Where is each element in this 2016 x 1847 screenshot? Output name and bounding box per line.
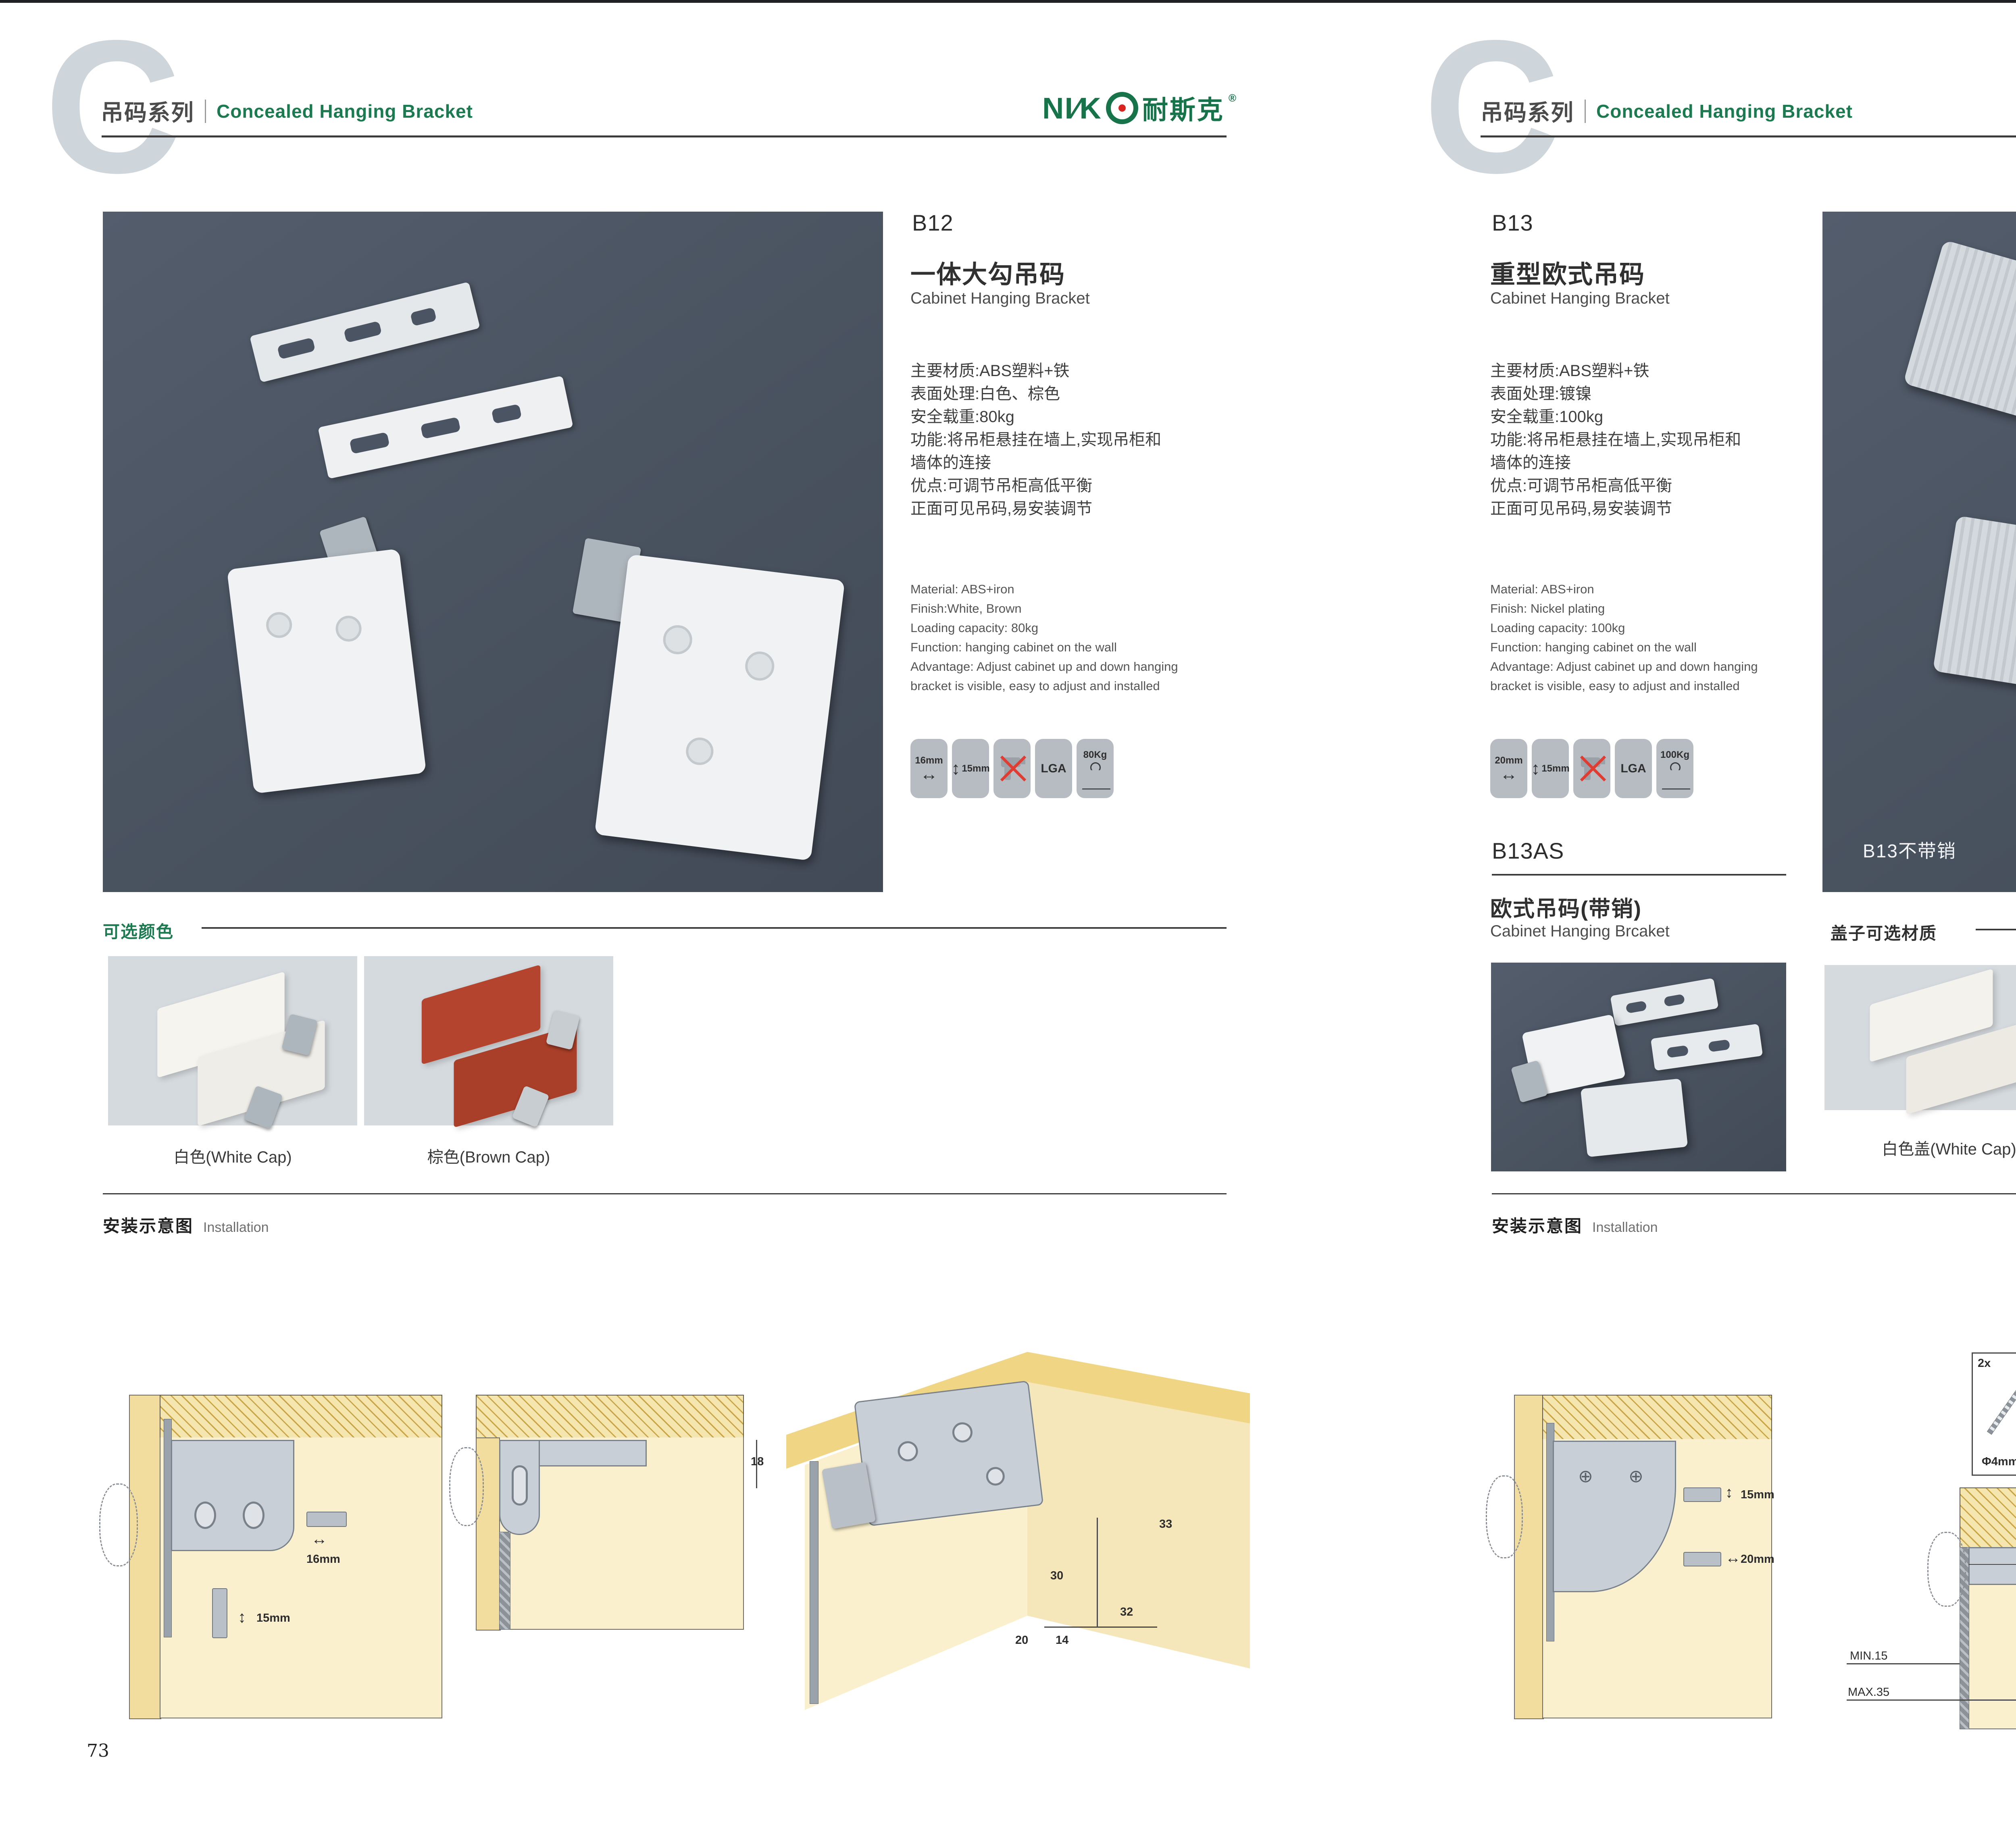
bracket-shape-large (594, 554, 845, 861)
screw-spec-box: 2x Φ4mm (1972, 1352, 2016, 1476)
product-code: B13 (1492, 210, 1533, 236)
screw-cross-icon: ⊕ (1629, 1466, 1643, 1487)
screw-bit-icon (306, 1512, 347, 1527)
product-photo-b13: B13不带销 (1822, 212, 2016, 892)
photo-caption: B13不带销 (1863, 836, 1956, 863)
specs-en: Material: ABS+iron Finish:White, Brown L… (910, 580, 1281, 696)
spec-line: 墙体的连接 (1490, 451, 1853, 474)
wall-rail-shape (1651, 1024, 1763, 1071)
badge-lga-certificate: LGA (1035, 739, 1072, 798)
color-swatch-white (108, 956, 357, 1125)
install-diagram-front: ↔ 16mm ↕ 15mm (129, 1395, 442, 1719)
spec-line: 安全载重:100kg (1490, 406, 1853, 428)
badge-height-icon: ↕ 15mm (1532, 739, 1569, 798)
spec-line: 正面可见吊码,易安装调节 (1490, 497, 1853, 520)
spec-line: Material: ABS+iron (910, 580, 1281, 599)
weight-icon (1659, 762, 1691, 788)
dim-label: MIN.15 (1850, 1649, 1887, 1663)
arrow-glyph: ↕ (238, 1608, 246, 1627)
series-title-cn: 吊码系列 (1481, 95, 1574, 127)
feature-badges: 16mm ↔ ↕ 15mm LGA 80Kg (910, 739, 1114, 798)
page-header: 吊码系列 Concealed Hanging Bracket (101, 95, 473, 127)
spec-line: Advantage: Adjust cabinet up and down ha… (1490, 657, 1861, 676)
weight-icon (1079, 762, 1111, 788)
dim-label: 14 (1056, 1634, 1068, 1647)
installation-heading: 安装示意图 Installation (103, 1213, 269, 1237)
brand-logo-reddot-icon (1118, 104, 1126, 112)
brand-logo: NI∕K 耐斯克 ® (1042, 89, 1236, 127)
spec-line: 正面可见吊码,易安装调节 (910, 497, 1273, 520)
wall-rail-shape (1610, 978, 1718, 1026)
spec-line: Loading capacity: 100kg (1490, 618, 1861, 638)
screw-cross-icon: ⊕ (1578, 1466, 1593, 1487)
spec-line: Material: ABS+iron (1490, 580, 1861, 599)
scan-edge-strip (0, 0, 2016, 3)
screw-count: 2x (1978, 1357, 1991, 1370)
registered-mark: ® (1229, 92, 1236, 104)
spec-line: Function: hanging cabinet on the wall (1490, 638, 1861, 657)
dim-label: 15mm (1741, 1488, 1774, 1502)
product-code: B12 (912, 210, 954, 236)
horizontal-arrow-icon: ↔ (1500, 766, 1518, 782)
spec-line: Advantage: Adjust cabinet up and down ha… (910, 657, 1281, 676)
brand-logo-latin: NI∕K (1042, 91, 1102, 125)
dim-label: 20mm (1741, 1553, 1774, 1566)
dim-label: 32 (1120, 1606, 1133, 1619)
spec-line: 优点:可调节吊柜高低平衡 (910, 474, 1273, 497)
series-title-cn: 吊码系列 (101, 95, 194, 127)
product-name-en: Cabinet Hanging Bracket (1490, 289, 1670, 308)
specs-cn: 主要材质:ABS塑料+铁 表面处理:镀镍 安全载重:100kg 功能:将吊柜悬挂… (1490, 360, 1853, 520)
screw-icon (1987, 1378, 2016, 1435)
badge-load-capacity-icon: 100Kg (1656, 739, 1693, 798)
section-rule (202, 927, 1227, 929)
dashed-hook-outline (449, 1447, 484, 1526)
dim-label: 20 (1015, 1634, 1028, 1647)
swatch-label: 白色(White Cap) (108, 1144, 357, 1167)
arrow-glyph: ↕ (1725, 1484, 1733, 1502)
drill-icon (998, 753, 1026, 785)
spec-line: bracket is visible, easy to adjust and i… (910, 676, 1281, 696)
bracket-shape (1581, 1078, 1688, 1157)
badge-width-icon: 16mm ↔ (910, 739, 948, 798)
wall-rail-shape (250, 282, 480, 383)
header-divider (205, 100, 206, 123)
euro-bracket-shape (1903, 240, 2016, 445)
specs-en: Material: ABS+iron Finish: Nickel platin… (1490, 580, 1861, 696)
bracket-body-drawing (499, 1440, 540, 1535)
colors-section-title: 可选颜色 (103, 918, 174, 943)
screwdriver-bit-icon (212, 1588, 227, 1638)
product-photo-b13as (1491, 963, 1786, 1171)
badge-lga-certificate: LGA (1615, 739, 1652, 798)
spec-line: 功能:将吊柜悬挂在墙上,实现吊柜和 (1490, 428, 1853, 451)
spec-line: 墙体的连接 (910, 451, 1273, 474)
install-diagram-screws: 2x Φ4mm 18 MIN.15 MAX.35 58 (1943, 1342, 2016, 1729)
spec-line: Loading capacity: 80kg (910, 618, 1281, 638)
sub-product-name-en: Cabinet Hanging Brcaket (1490, 922, 1670, 940)
bracket-drawing (854, 1381, 1044, 1527)
arrow-glyph: ↔ (1725, 1550, 1741, 1567)
header-divider (1585, 100, 1586, 123)
catalog-spread: C 吊码系列 Concealed Hanging Bracket NI∕K 耐斯… (0, 0, 2016, 1847)
dim-label: 15mm (256, 1612, 290, 1625)
product-name-en: Cabinet Hanging Bracket (910, 289, 1090, 308)
header-rule (1481, 135, 2016, 137)
wall-rail-shape (318, 376, 573, 479)
badge-width-icon: 20mm ↔ (1490, 739, 1527, 798)
dim-label: 18 (751, 1455, 764, 1468)
install-diagram-side: 18 (476, 1395, 744, 1631)
badge-no-drill-icon (1573, 739, 1610, 798)
installation-heading: 安装示意图 Installation (1492, 1213, 1658, 1237)
badge-load-capacity-icon: 80Kg (1077, 739, 1114, 798)
dashed-hook-outline (1486, 1475, 1523, 1558)
spec-line: 表面处理:白色、棕色 (910, 383, 1273, 406)
dim-label: MAX.35 (1848, 1686, 1889, 1699)
spec-line: 表面处理:镀镍 (1490, 383, 1853, 406)
swatch-label: 棕色(Brown Cap) (364, 1144, 613, 1167)
screw-bit-icon (1683, 1487, 1721, 1502)
spec-line: Finish: Nickel plating (1490, 599, 1861, 618)
feature-badges: 20mm ↔ ↕ 15mm LGA 100Kg (1490, 739, 1693, 798)
product-photo-b12 (103, 212, 883, 892)
section-rule (103, 1193, 1227, 1194)
spec-line: 主要材质:ABS塑料+铁 (910, 360, 1273, 383)
spec-line: Finish:White, Brown (910, 599, 1281, 618)
badge-no-drill-icon (993, 739, 1031, 798)
caps-section-title: 盖子可选材质 (1831, 920, 1937, 944)
page-number: 73 (87, 1741, 109, 1761)
badge-height-icon: ↕ 15mm (952, 739, 989, 798)
series-title-en: Concealed Hanging Bracket (1596, 100, 1853, 122)
rail-drawing (1968, 1547, 2016, 1585)
page-header: 吊码系列 Concealed Hanging Bracket (1481, 95, 1853, 127)
spec-line: bracket is visible, easy to adjust and i… (1490, 676, 1861, 696)
brand-logo-cn: 耐斯克 (1142, 89, 1225, 127)
install-diagram-front: ⊕ ⊕ ↕ 15mm ↔ 20mm (1514, 1395, 1772, 1719)
series-title-en: Concealed Hanging Bracket (217, 100, 473, 122)
section-rule (1492, 1193, 2016, 1194)
dashed-hook-outline (99, 1483, 138, 1566)
swatch-label: 白色盖(White Cap) (1824, 1136, 2016, 1159)
dim-label: 16mm (306, 1553, 340, 1566)
bracket-shape-small (227, 549, 426, 794)
install-diagram-perspective: 33 30 32 20 14 (786, 1344, 1250, 1721)
cap-swatch-white (1824, 965, 2016, 1110)
product-name-cn: 一体大勾吊码 (910, 254, 1065, 290)
drill-icon (1578, 753, 1606, 785)
screw-diameter: Φ4mm (1982, 1455, 2016, 1468)
horizontal-arrow-icon: ↔ (920, 766, 938, 782)
section-rule (1976, 929, 2016, 930)
euro-bracket-shape (1933, 516, 2016, 710)
sub-product-rule (1492, 874, 1786, 876)
spec-line: 主要材质:ABS塑料+铁 (1490, 360, 1853, 383)
brand-logo-o-icon (1106, 92, 1138, 124)
bracket-drawing (171, 1440, 294, 1551)
arrow-glyph: ↔ (311, 1530, 327, 1548)
spec-line: Function: hanging cabinet on the wall (910, 638, 1281, 657)
spec-line: 优点:可调节吊柜高低平衡 (1490, 474, 1853, 497)
hook-outline (1927, 1532, 1966, 1607)
product-name-cn: 重型欧式吊码 (1490, 254, 1645, 290)
color-swatch-brown (364, 956, 613, 1125)
dim-label: 33 (1159, 1518, 1172, 1531)
sub-product-code: B13AS (1492, 838, 1564, 864)
spec-line: 功能:将吊柜悬挂在墙上,实现吊柜和 (910, 428, 1273, 451)
vertical-arrow-icon: ↕ (1531, 761, 1540, 777)
screw-bit-icon (1683, 1552, 1721, 1566)
specs-cn: 主要材质:ABS塑料+铁 表面处理:白色、棕色 安全载重:80kg 功能:将吊柜… (910, 360, 1273, 520)
spec-line: 安全载重:80kg (910, 406, 1273, 428)
dim-label: 30 (1050, 1569, 1063, 1583)
vertical-arrow-icon: ↕ (951, 761, 960, 777)
header-rule (102, 135, 1227, 137)
sub-product-name-cn: 欧式吊码(带销) (1490, 891, 1642, 923)
